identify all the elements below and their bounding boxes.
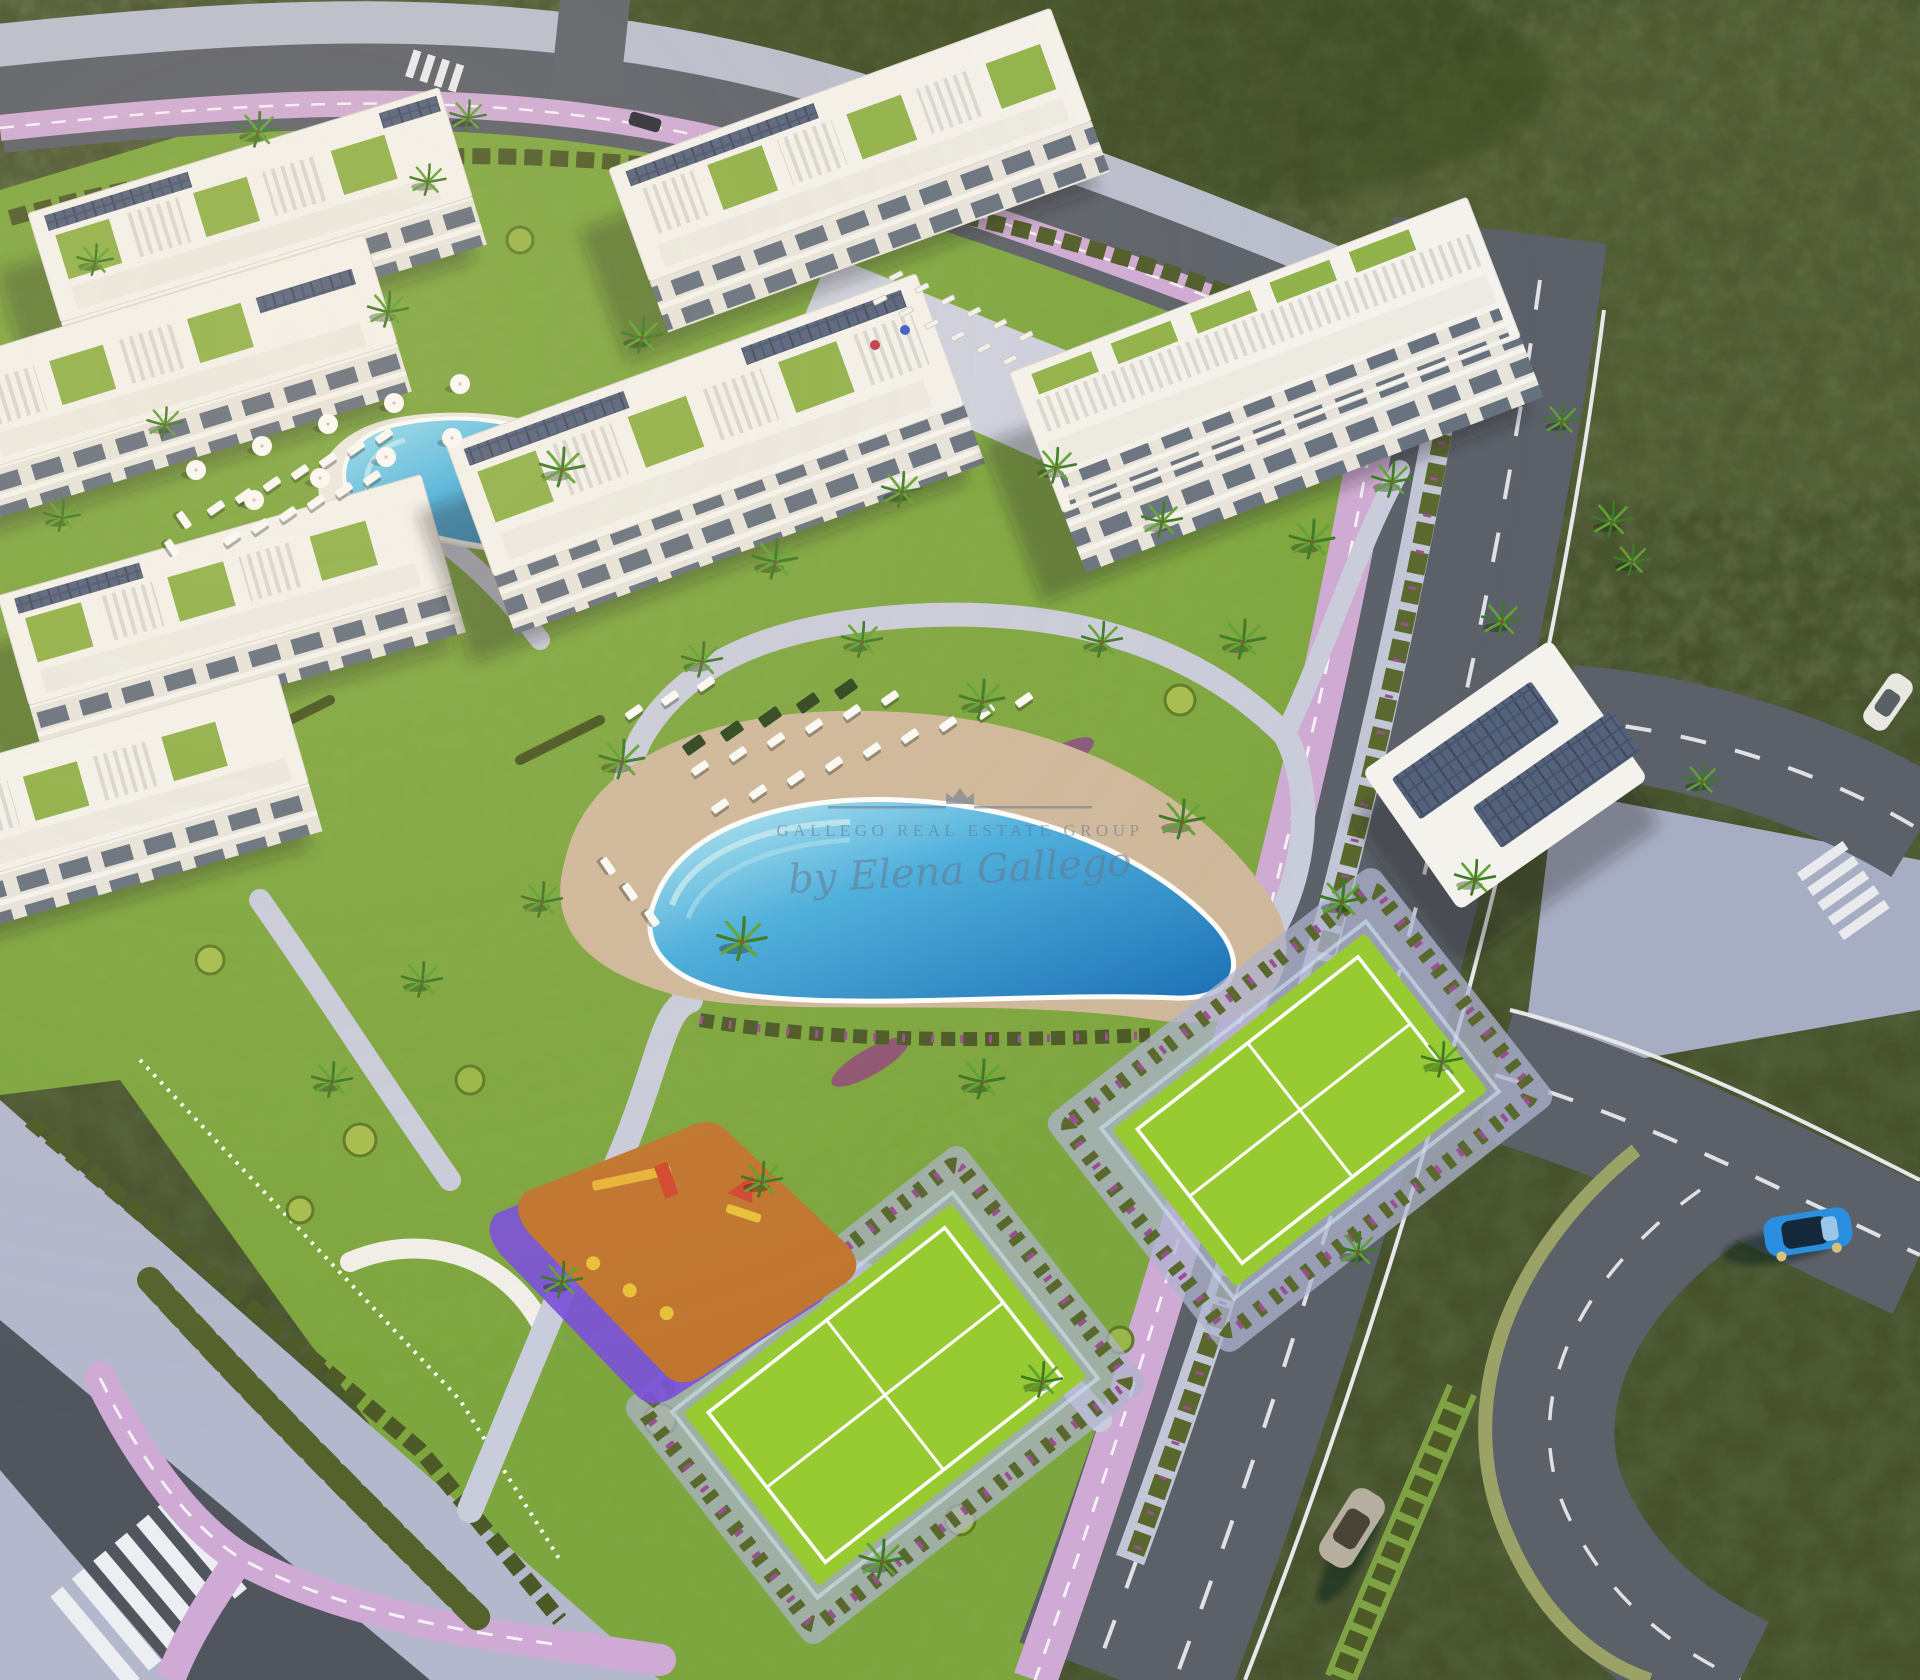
scene-svg: GALLEGO REAL ESTATE GROUP by Elena Galle… xyxy=(0,0,1920,1680)
light-wash-overlay xyxy=(0,0,1920,1680)
watermark-brand-text: GALLEGO REAL ESTATE GROUP xyxy=(777,821,1144,840)
aerial-render: GALLEGO REAL ESTATE GROUP by Elena Galle… xyxy=(0,0,1920,1680)
watermark-rule-right xyxy=(974,806,1092,809)
watermark-rule-left xyxy=(828,806,946,809)
